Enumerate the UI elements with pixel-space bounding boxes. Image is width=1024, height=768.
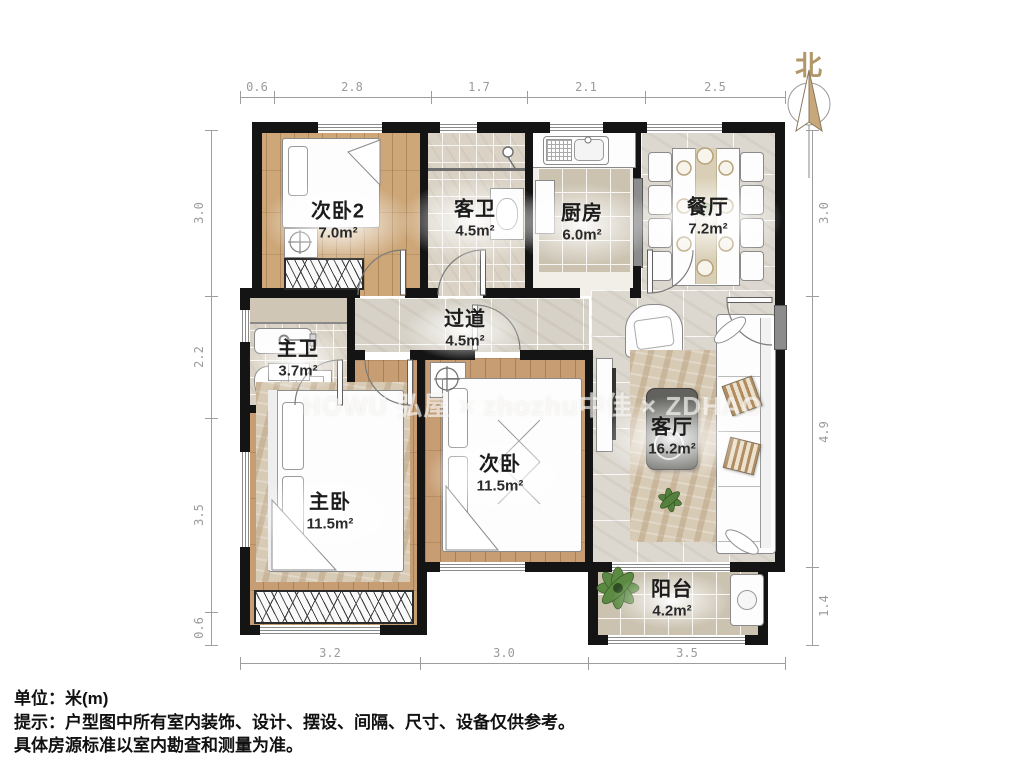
room-label-master-bed: 主卧11.5m² (307, 492, 354, 535)
dim-top-4: 2.5 (704, 80, 726, 94)
room-label-balcony: 阳台4.2m² (651, 579, 693, 622)
room-label-bedroom2: 次卧27.0m² (311, 201, 365, 244)
dim-left-1: 2.2 (192, 346, 206, 368)
entry-door-leaf (727, 298, 772, 303)
dim-tick (785, 657, 786, 670)
room-area: 4.5m² (454, 221, 496, 242)
room-area: 11.5m² (307, 514, 354, 535)
room-label-kitchen: 厨房6.0m² (561, 203, 603, 246)
dim-bottom-0: 3.2 (319, 646, 341, 660)
room-area: 11.5m² (477, 476, 524, 497)
dim-tick (645, 91, 646, 104)
room-area: 6.0m² (561, 225, 603, 246)
coffee-table-plant-icon (657, 487, 682, 512)
dim-left-2: 3.5 (192, 504, 206, 526)
dim-left-3: 0.6 (192, 617, 206, 639)
room-area: 4.5m² (444, 331, 486, 352)
room-area: 7.2m² (687, 219, 729, 240)
room-label-master-bath: 主卫3.7m² (277, 339, 319, 382)
room-area: 16.2m² (648, 439, 696, 460)
dim-tick (806, 130, 819, 131)
dim-tick (806, 645, 819, 646)
room-name: 主卫 (277, 339, 319, 361)
room-name: 客卫 (454, 199, 496, 221)
dim-tick (806, 567, 819, 568)
dim-tick (806, 296, 819, 297)
dim-line-top (240, 97, 785, 98)
dim-tick (420, 657, 421, 670)
dim-left-0: 3.0 (192, 202, 206, 224)
dim-tick (205, 418, 218, 419)
dim-tick (205, 130, 218, 131)
dim-bottom-2: 3.5 (676, 646, 698, 660)
room-name: 厨房 (561, 203, 603, 225)
dim-tick (240, 91, 241, 104)
shower-icon (503, 147, 516, 170)
kitchen-faucet-icon (585, 137, 591, 143)
dim-right-2: 1.4 (817, 595, 831, 617)
dim-top-2: 1.7 (468, 80, 490, 94)
dim-tick (205, 296, 218, 297)
dim-tick (274, 91, 275, 104)
note-unit: 单位：米(m) (14, 684, 108, 709)
room-name: 餐厅 (687, 197, 729, 219)
room-name: 次卧 (477, 454, 524, 476)
dim-tick (431, 91, 432, 104)
floorplan-canvas: 次卧27.0m² 客卫4.5m² 厨房6.0m² 餐厅7.2m² 过道4.5m²… (0, 0, 1024, 768)
room-name: 主卧 (307, 492, 354, 514)
dim-top-3: 2.1 (575, 80, 597, 94)
dim-tick (240, 657, 241, 670)
room-name: 过道 (444, 309, 486, 331)
compass-north-label: 北 (795, 44, 822, 83)
dim-top-0: 0.6 (246, 80, 268, 94)
dim-right-0: 3.0 (817, 202, 831, 224)
note-tip: 提示：户型图中所有室内装饰、设计、摆设、间隔、尺寸、设备仅供参考。 (14, 708, 575, 733)
dim-tick (527, 91, 528, 104)
room-area: 7.0m² (311, 223, 365, 244)
dim-tick (785, 91, 786, 104)
dim-bottom-1: 3.0 (493, 646, 515, 660)
room-label-guest-bath: 客卫4.5m² (454, 199, 496, 242)
dim-line-left (211, 130, 212, 645)
room-label-hallway: 过道4.5m² (444, 309, 486, 352)
dim-tick (588, 657, 589, 670)
compass-icon (788, 70, 830, 178)
room-area: 4.2m² (651, 601, 693, 622)
watermark: HOWU 弘屋 × zhozhu中佳 × ZDHAO (302, 386, 763, 423)
room-name: 阳台 (651, 579, 693, 601)
dim-tick (205, 645, 218, 646)
dim-line-bottom (240, 663, 785, 664)
note-tip2: 具体房源标准以室内勘查和测量为准。 (14, 731, 303, 756)
bedroom2-bed-fold (348, 140, 380, 185)
dim-right-1: 4.9 (817, 421, 831, 443)
dim-tick (205, 612, 218, 613)
dim-top-1: 2.8 (341, 80, 363, 94)
room-label-dining: 餐厅7.2m² (687, 197, 729, 240)
room-name: 次卧2 (311, 201, 365, 223)
room-label-bedroom: 次卧11.5m² (477, 454, 524, 497)
room-area: 3.7m² (277, 361, 319, 382)
